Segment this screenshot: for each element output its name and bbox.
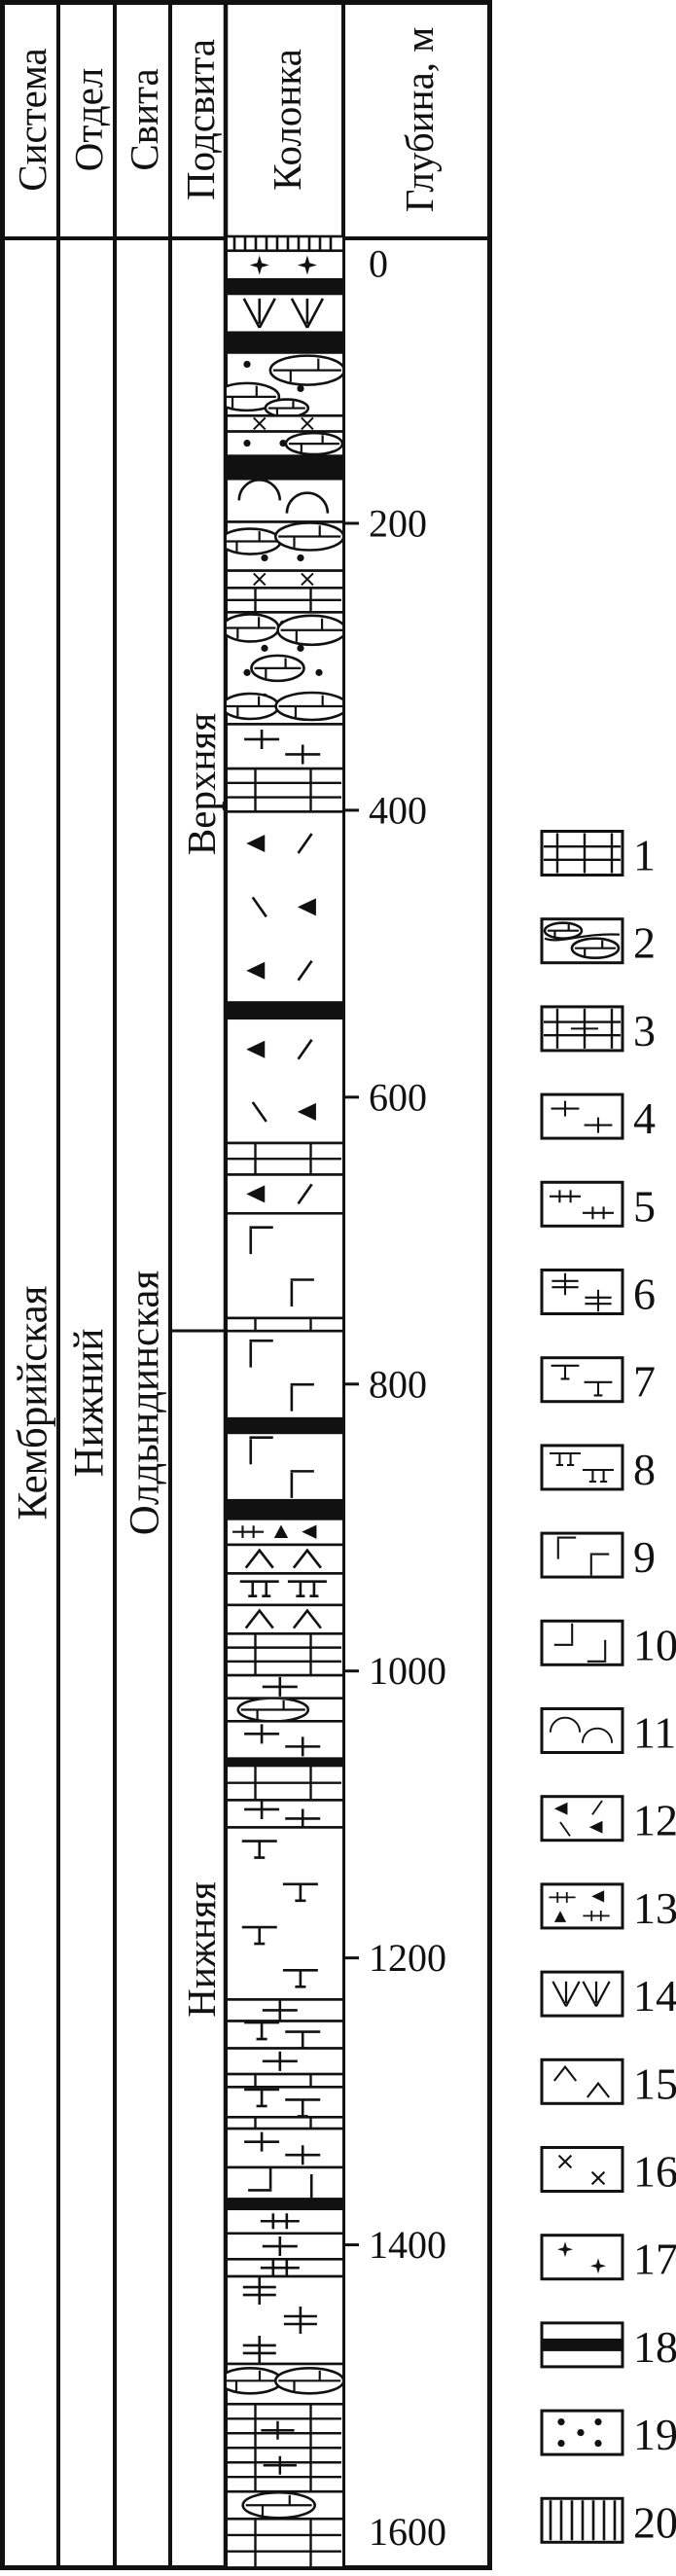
legend-swatch-vhatch: [551, 2500, 615, 2540]
series-label: Нижний: [67, 1329, 113, 1478]
depth-tick-label: 1000: [369, 1649, 446, 1693]
legend-number: 8: [633, 1445, 656, 1494]
formation-label: Олдындинская: [123, 1270, 168, 1535]
legend-number: 6: [633, 1270, 656, 1319]
header-column: Колонка: [265, 49, 309, 191]
depth-tick-label: 600: [369, 1075, 427, 1119]
legend-swatch-black: [544, 2339, 622, 2351]
limestone-lens: [219, 2368, 281, 2393]
limestone-lens: [222, 694, 278, 719]
legend-number: 13: [633, 1883, 676, 1933]
figure-svg: Система Отдел Свита Подсвита Колонка Глу…: [0, 0, 676, 2571]
legend-number: 2: [633, 918, 656, 968]
legend-item-10: 10: [542, 1620, 676, 1669]
legend-number: 15: [633, 2058, 676, 2108]
legend-number: 3: [633, 1006, 656, 1055]
limestone-lens: [238, 1699, 308, 1722]
limestone-lens: [275, 2368, 343, 2393]
legend-number: 11: [633, 1708, 676, 1758]
band-lens: [243, 2492, 315, 2518]
band-black: [225, 1418, 345, 1433]
depth-axis: 02004006008001000120014001600: [344, 242, 447, 2555]
legend-number: 16: [633, 2147, 676, 2197]
legend-item-2: 2: [542, 918, 656, 968]
legend-item-16: 16: [542, 2147, 676, 2197]
header-depth: Глубина, м: [397, 27, 442, 212]
depth-tick-label: 1600: [369, 2510, 446, 2554]
header-system: Система: [10, 48, 54, 191]
legend-number: 17: [633, 2235, 676, 2284]
legend-item-1: 1: [542, 831, 656, 880]
legend-item-5: 5: [542, 1181, 656, 1231]
lithology-column: [215, 236, 348, 2567]
limestone-lens: [266, 400, 308, 417]
subformation-upper-label: Верхняя: [179, 713, 224, 855]
limestone-lens: [243, 2492, 315, 2518]
legend-item-17: 17: [542, 2235, 676, 2284]
legend-item-8: 8: [542, 1445, 656, 1494]
legend-item-19: 19: [542, 2410, 676, 2459]
stratigraphic-column-figure: Система Отдел Свита Подсвита Колонка Глу…: [0, 0, 676, 2571]
legend-item-7: 7: [542, 1357, 656, 1407]
legend-item-11: 11: [542, 1708, 676, 1758]
legend-number: 20: [633, 2497, 676, 2547]
depth-tick-label: 0: [369, 242, 388, 286]
band-black: [225, 456, 345, 480]
band-black: [225, 1002, 345, 1018]
subformation-lower-label: Нижняя: [179, 1881, 224, 2018]
band-black: [225, 1500, 345, 1519]
depth-tick-label: 1400: [369, 2223, 446, 2267]
limestone-lens: [270, 356, 344, 385]
stratigraphy-labels: Кембрийская Нижний Олдындинская Верхняя …: [11, 713, 225, 2018]
limestone-lens: [222, 614, 278, 641]
legend-item-15: 15: [542, 2058, 676, 2108]
header-series: Отдел: [66, 68, 111, 172]
limestone-lens: [572, 939, 619, 958]
legend-item-14: 14: [542, 1971, 676, 2021]
legend-number: 12: [633, 1796, 676, 1845]
legend-number: 5: [633, 1181, 656, 1231]
header-subformation: Подсвита: [178, 39, 223, 200]
band-black: [225, 333, 345, 353]
limestone-lens: [220, 529, 280, 555]
legend: 1234567891011121314151617181920: [542, 831, 676, 2548]
legend-item-13: 13: [542, 1883, 676, 1933]
legend-item-18: 18: [542, 2322, 676, 2372]
limestone-lens: [278, 616, 346, 645]
limestone-lens: [276, 693, 348, 720]
band-black: [225, 279, 345, 294]
legend-number: 10: [633, 1620, 676, 1669]
header-formation: Свита: [122, 68, 166, 170]
band-black: [225, 2199, 345, 2208]
depth-tick-label: 1200: [369, 1936, 446, 1980]
legend-item-20: 20: [542, 2497, 676, 2547]
legend-item-9: 9: [542, 1532, 656, 1582]
legend-number: 1: [633, 831, 656, 880]
system-label: Кембрийская: [11, 1286, 56, 1521]
legend-number: 4: [633, 1093, 656, 1143]
limestone-lens: [286, 433, 342, 454]
legend-number: 18: [633, 2322, 676, 2372]
limestone-lens: [545, 923, 582, 939]
limestone-lens: [251, 656, 303, 681]
legend-item-3: 3: [542, 1006, 656, 1055]
limestone-lens: [275, 523, 343, 551]
depth-tick-label: 400: [369, 788, 427, 832]
legend-number: 9: [633, 1532, 656, 1582]
legend-number: 19: [633, 2410, 676, 2459]
depth-tick-label: 200: [369, 501, 427, 545]
legend-item-4: 4: [542, 1093, 656, 1143]
legend-number: 14: [633, 1971, 676, 2021]
legend-number: 7: [633, 1357, 656, 1407]
depth-tick-label: 800: [369, 1362, 427, 1406]
band-lens: [238, 1699, 308, 1722]
legend-item-12: 12: [542, 1796, 676, 1845]
legend-item-6: 6: [542, 1270, 656, 1319]
